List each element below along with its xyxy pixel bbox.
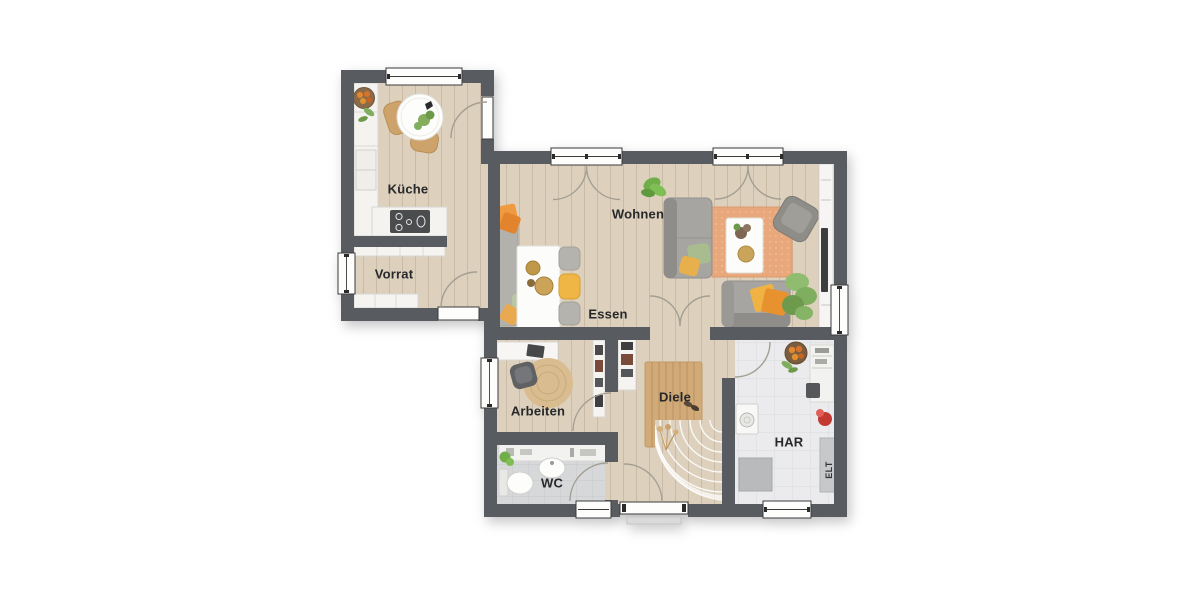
french-window-2 xyxy=(713,148,783,165)
front-door xyxy=(620,502,688,514)
window-office-west xyxy=(481,358,498,408)
window-living-east xyxy=(831,285,848,335)
toilet xyxy=(507,472,533,494)
dark-box xyxy=(806,383,820,398)
laptop xyxy=(526,344,545,358)
room-label-arbeiten: Arbeiten xyxy=(511,404,565,419)
storage-box xyxy=(739,458,772,491)
cooktop xyxy=(390,210,430,233)
room-label-vorrat: Vorrat xyxy=(375,267,414,282)
washing-machine xyxy=(736,404,758,434)
window-kitchen-top xyxy=(386,68,462,85)
window-har-south xyxy=(763,501,811,518)
french-window-1 xyxy=(551,148,622,165)
opening-floor xyxy=(605,462,618,500)
wall-kitchen-pantry xyxy=(354,236,447,247)
room-label-kueche: Küche xyxy=(388,182,429,197)
floorplan-canvas: Küche Vorrat Wohnen Essen Arbeiten Diele… xyxy=(0,0,1200,600)
dining-chair xyxy=(559,302,580,325)
wall-living-hall xyxy=(710,327,847,340)
opening-floor xyxy=(605,392,618,432)
sofa-2 xyxy=(722,281,790,327)
room-label-elt: ELT xyxy=(824,461,834,479)
room-label-essen: Essen xyxy=(588,307,627,322)
sofa xyxy=(664,198,712,278)
dining-chair xyxy=(559,247,580,270)
room-label-har: HAR xyxy=(775,435,804,450)
coffee-table xyxy=(726,218,763,273)
dining-chair-yellow xyxy=(559,274,580,299)
room-label-wohnen: Wohnen xyxy=(612,207,664,222)
room-label-diele: Diele xyxy=(659,390,691,405)
wall-dining-office xyxy=(484,327,650,340)
floorplan-group xyxy=(338,68,848,524)
kitchen-terrace-door xyxy=(482,97,493,139)
opening-floor xyxy=(722,340,735,378)
floorplan-drawing xyxy=(0,0,1200,600)
wall-office-wc xyxy=(497,432,605,445)
wall-har-west xyxy=(722,378,735,504)
side-entrance-door xyxy=(438,307,479,320)
wall-kitchen-living xyxy=(488,164,500,327)
opening-floor xyxy=(650,327,710,340)
staircase xyxy=(655,420,722,504)
window-wc-south xyxy=(576,501,611,518)
tv xyxy=(821,228,828,292)
entrance-step xyxy=(627,517,681,524)
window-pantry-west xyxy=(338,253,355,294)
room-label-wc: WC xyxy=(541,476,563,491)
